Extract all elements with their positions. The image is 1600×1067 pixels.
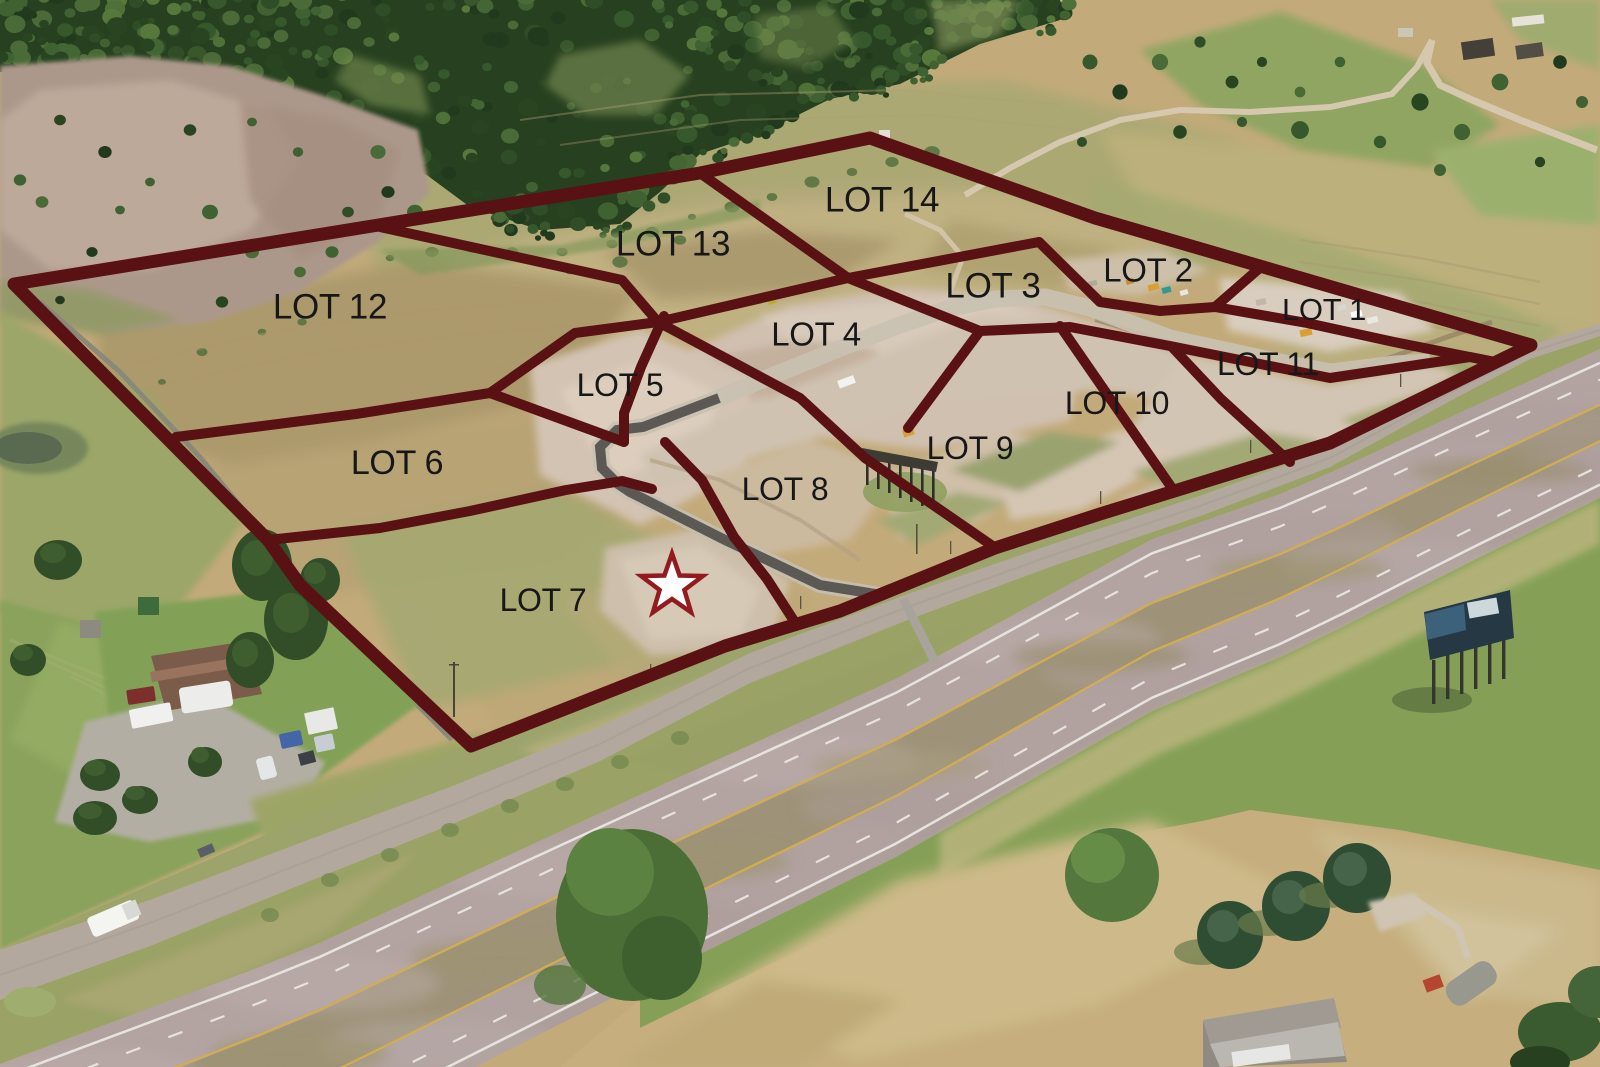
svg-text:LOT 2: LOT 2 <box>1103 252 1193 289</box>
svg-text:LOT 8: LOT 8 <box>742 471 829 507</box>
svg-text:LOT 11: LOT 11 <box>1217 346 1319 382</box>
svg-text:LOT 13: LOT 13 <box>616 224 730 263</box>
svg-text:LOT 3: LOT 3 <box>945 266 1040 305</box>
svg-text:LOT 6: LOT 6 <box>351 444 443 482</box>
svg-text:LOT 10: LOT 10 <box>1065 385 1169 421</box>
svg-text:LOT 9: LOT 9 <box>927 430 1014 466</box>
svg-text:LOT 7: LOT 7 <box>500 582 587 618</box>
svg-text:LOT 14: LOT 14 <box>825 180 939 219</box>
svg-text:LOT 5: LOT 5 <box>577 367 664 403</box>
svg-text:LOT 1: LOT 1 <box>1282 292 1366 327</box>
svg-text:LOT 4: LOT 4 <box>771 316 861 353</box>
svg-text:LOT 12: LOT 12 <box>273 287 387 326</box>
